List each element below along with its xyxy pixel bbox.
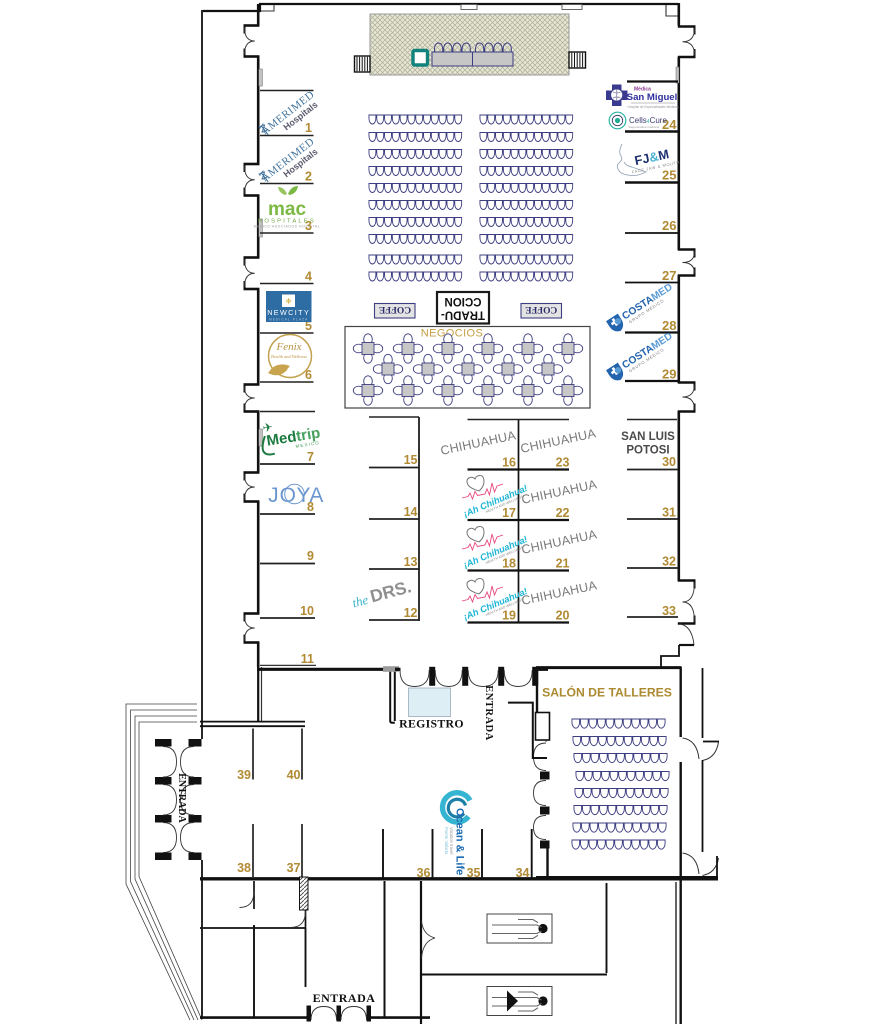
- svg-text:CHIHUAHUA: CHIHUAHUA: [520, 477, 598, 507]
- svg-text:mac: mac: [268, 199, 306, 220]
- svg-text:38: 38: [237, 861, 251, 875]
- svg-text:20: 20: [556, 609, 570, 623]
- svg-text:San Miguel: San Miguel: [627, 92, 678, 103]
- svg-text:39: 39: [237, 768, 251, 782]
- svg-text:ENTRADA: ENTRADA: [176, 773, 187, 823]
- svg-text:POTOSI: POTOSI: [626, 445, 669, 457]
- svg-text:13: 13: [404, 555, 418, 569]
- svg-text:15: 15: [404, 453, 418, 467]
- svg-text:Cells4Cure: Cells4Cure: [629, 116, 667, 125]
- svg-text:17: 17: [502, 506, 516, 520]
- svg-text:30: 30: [662, 455, 676, 469]
- svg-text:1: 1: [305, 121, 312, 135]
- svg-text:REGISTRO: REGISTRO: [399, 717, 464, 731]
- svg-text:12: 12: [404, 606, 418, 620]
- svg-text:40: 40: [287, 768, 301, 782]
- svg-text:❉: ❉: [286, 298, 292, 306]
- svg-text:COFFE: COFFE: [379, 304, 411, 314]
- svg-text:CHIHUAHUA: CHIHUAHUA: [439, 428, 517, 458]
- svg-text:Ocean & Life: Ocean & Life: [454, 808, 466, 875]
- svg-text:Vacation travel: Vacation travel: [449, 827, 454, 854]
- svg-text:18: 18: [502, 557, 516, 571]
- svg-text:28: 28: [662, 318, 676, 333]
- svg-text:COFFE: COFFE: [525, 304, 557, 314]
- svg-text:14: 14: [404, 505, 418, 519]
- svg-text:23: 23: [556, 456, 570, 470]
- svg-text:CHIHUAHUA: CHIHUAHUA: [520, 578, 598, 608]
- svg-text:Hospital de Especialidades Méd: Hospital de Especialidades Médicas: [627, 105, 678, 109]
- svg-text:4: 4: [305, 270, 312, 284]
- svg-text:22: 22: [556, 506, 570, 520]
- svg-text:TRADU-: TRADU-: [441, 308, 485, 320]
- svg-text:29: 29: [662, 367, 676, 382]
- svg-text:CHIHUAHUA: CHIHUAHUA: [520, 527, 598, 557]
- svg-text:16: 16: [502, 456, 516, 470]
- svg-text:Health and Wellness: Health and Wellness: [270, 354, 307, 359]
- svg-text:the: the: [351, 592, 370, 611]
- svg-text:7: 7: [307, 450, 314, 464]
- svg-text:DRS.: DRS.: [368, 576, 414, 606]
- svg-text:SALÓN DE TALLERES: SALÓN DE TALLERES: [542, 685, 672, 700]
- svg-text:COSTAMED: COSTAMED: [620, 331, 674, 372]
- svg-text:CHIHUAHUA: CHIHUAHUA: [519, 426, 597, 456]
- svg-text:NEWCITY: NEWCITY: [267, 308, 310, 317]
- svg-text:ENTRADA: ENTRADA: [483, 685, 494, 740]
- svg-text:21: 21: [556, 557, 570, 571]
- svg-text:CCION: CCION: [444, 295, 481, 307]
- svg-text:MEDICAL PLAZA: MEDICAL PLAZA: [269, 317, 308, 321]
- svg-text:Puerto Vallarta: Puerto Vallarta: [444, 827, 449, 855]
- svg-text:2: 2: [305, 170, 312, 184]
- svg-text:32: 32: [662, 555, 676, 569]
- svg-text:31: 31: [662, 506, 676, 520]
- svg-text:10: 10: [300, 604, 314, 618]
- svg-text:37: 37: [287, 861, 301, 875]
- svg-text:Fenix: Fenix: [275, 341, 301, 353]
- svg-text:9: 9: [307, 549, 314, 563]
- svg-text:11: 11: [301, 652, 314, 666]
- svg-text:26: 26: [662, 218, 676, 233]
- svg-text:25: 25: [662, 168, 676, 183]
- svg-text:19: 19: [502, 609, 516, 623]
- svg-text:SAN LUIS: SAN LUIS: [621, 431, 675, 443]
- svg-text:MEXICO ASOCIADOS HOSPITAL: MEXICO ASOCIADOS HOSPITAL: [254, 225, 321, 229]
- svg-text:COSTAMED: COSTAMED: [620, 282, 674, 323]
- svg-text:Regenerative medicine: Regenerative medicine: [629, 125, 660, 129]
- svg-text:ENTRADA: ENTRADA: [313, 991, 376, 1005]
- svg-text:27: 27: [662, 268, 676, 283]
- svg-text:33: 33: [662, 604, 676, 618]
